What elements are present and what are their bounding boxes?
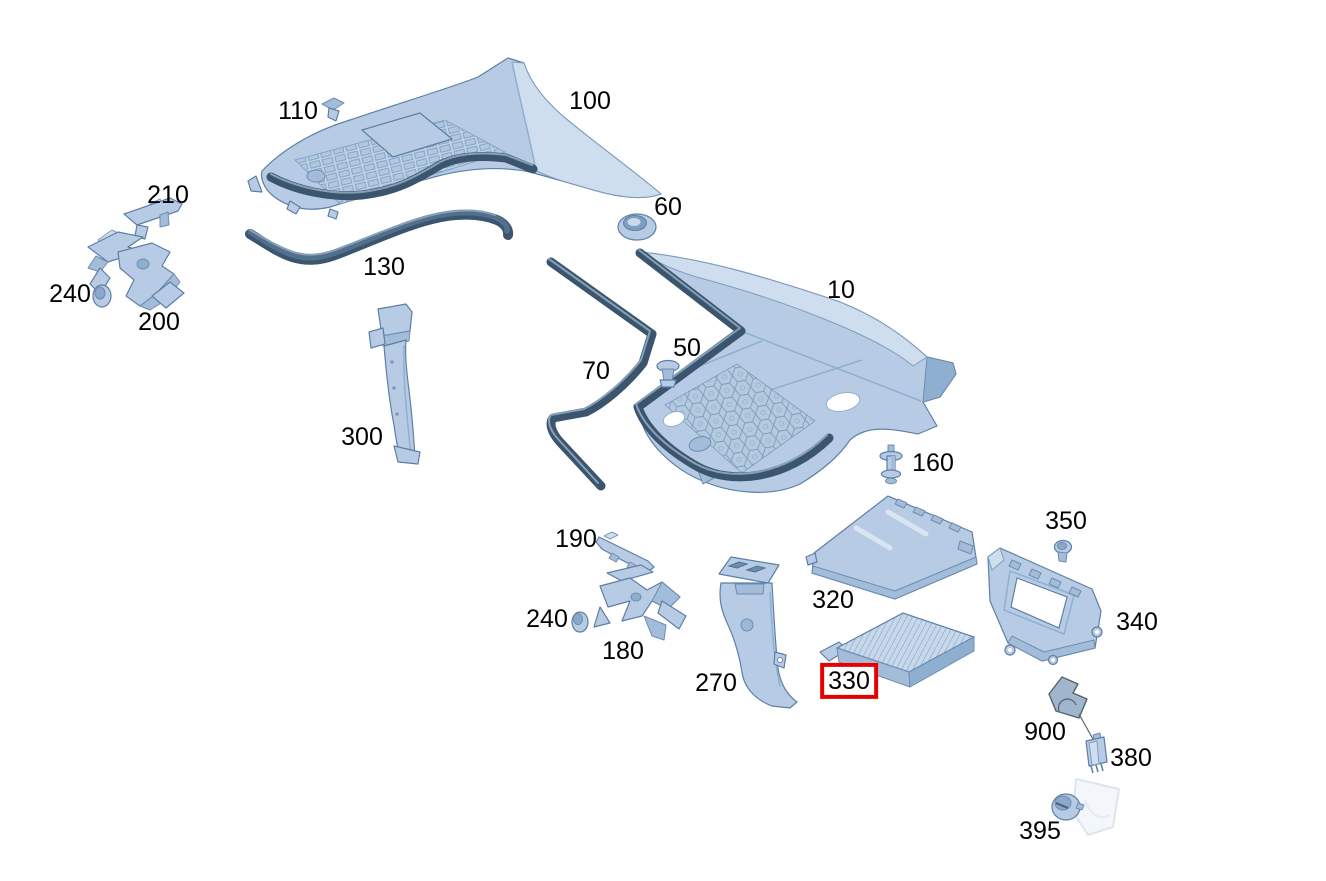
part-label-210[interactable]: 210 [147,182,189,208]
part-180-bracket[interactable] [594,565,686,640]
part-240-grommet-center[interactable] [572,612,588,632]
part-label-320[interactable]: 320 [812,587,854,613]
leader-line-900-380 [1079,714,1094,741]
part-240-grommet-left[interactable] [93,285,111,307]
part-160-rivet[interactable] [880,445,902,484]
part-label-190[interactable]: 190 [555,526,597,552]
part-10-cowl-panel[interactable] [636,250,956,492]
part-label-240-left[interactable]: 240 [49,281,91,307]
part-340-intake-frame[interactable] [988,548,1102,665]
part-label-350[interactable]: 350 [1045,508,1087,534]
part-110-clip[interactable] [322,98,344,121]
part-label-160[interactable]: 160 [912,450,954,476]
part-label-270[interactable]: 270 [695,670,737,696]
part-label-50[interactable]: 50 [673,335,701,361]
part-label-130[interactable]: 130 [363,254,405,280]
part-label-330-text: 330 [828,667,870,695]
part-label-340[interactable]: 340 [1116,609,1158,635]
part-60-grommet-ring[interactable] [618,214,656,240]
part-label-100[interactable]: 100 [569,88,611,114]
part-label-60[interactable]: 60 [654,194,682,220]
part-label-10[interactable]: 10 [827,277,855,303]
part-label-200[interactable]: 200 [138,309,180,335]
part-320-filter-housing-cover[interactable] [806,496,977,599]
part-label-70[interactable]: 70 [582,358,610,384]
part-350-clip[interactable] [1055,541,1072,563]
part-380-sensor[interactable] [1086,733,1107,773]
part-label-395[interactable]: 395 [1019,818,1061,844]
part-label-380[interactable]: 380 [1110,745,1152,771]
part-label-180[interactable]: 180 [602,638,644,664]
part-label-900[interactable]: 900 [1024,719,1066,745]
part-label-110[interactable]: 110 [278,98,318,124]
part-190-bracket[interactable] [596,532,654,572]
part-label-300[interactable]: 300 [341,424,383,450]
part-label-330-selected-highlight[interactable]: 330 [820,663,878,699]
part-100-cowl-cover-left[interactable] [248,58,661,219]
part-label-240-center[interactable]: 240 [526,606,568,632]
parts-diagram: 110 100 210 240 200 130 60 10 50 70 300 … [0,0,1326,881]
